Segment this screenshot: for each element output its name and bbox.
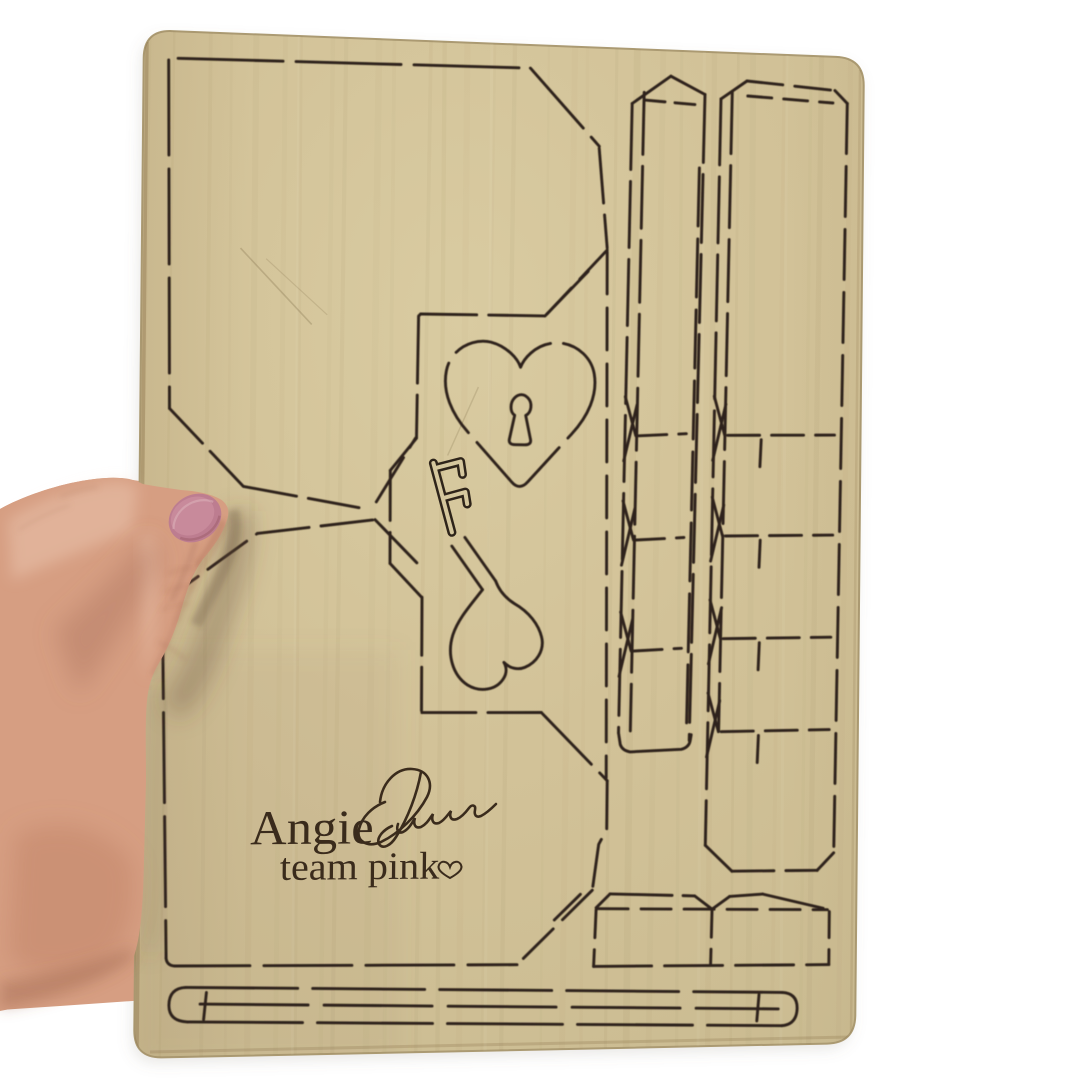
svg-text:team pink: team pink bbox=[280, 844, 440, 889]
